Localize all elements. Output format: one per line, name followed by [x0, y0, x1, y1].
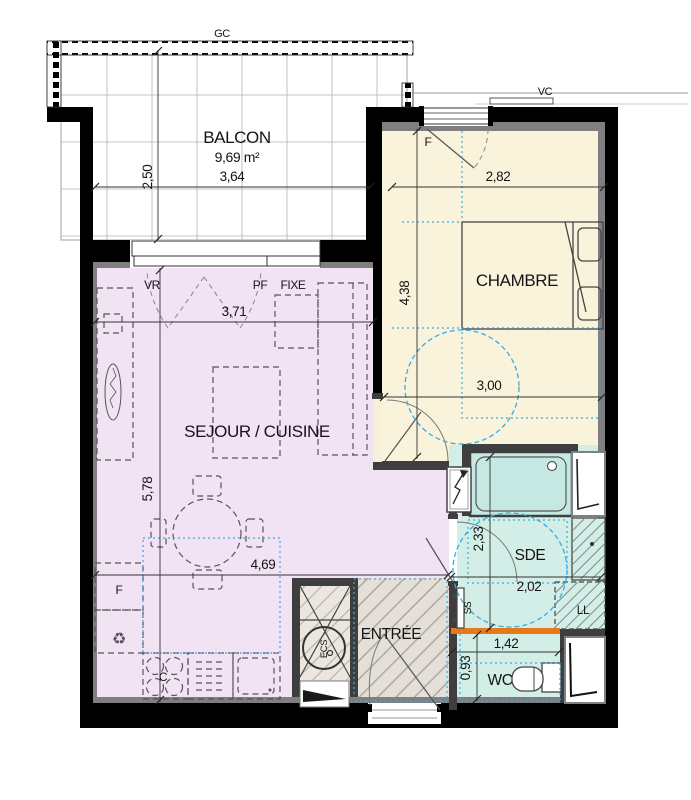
threshold-strip [451, 628, 560, 634]
balcon-label: BALCON [203, 128, 271, 147]
wc-label: WC [487, 672, 512, 689]
chambre-label: CHAMBRE [476, 271, 558, 290]
entree-label: ENTRÉE [361, 626, 422, 643]
svg-text:3,00: 3,00 [477, 378, 502, 393]
svg-text:4,38: 4,38 [397, 281, 412, 306]
vr-label: VR [144, 278, 161, 292]
bathroom-cabinet [572, 518, 605, 580]
sde-label: SDE [515, 547, 546, 564]
bay-window [130, 240, 320, 268]
svg-text:2,82: 2,82 [486, 169, 511, 184]
sejour-label: SEJOUR / CUISINE [184, 422, 330, 441]
fridge-f-label: F [116, 583, 123, 597]
svg-text:0,93: 0,93 [458, 656, 473, 681]
svg-text:2,33: 2,33 [471, 527, 486, 552]
floor-plan: 2,50 3,64 2,82 3,71 4,38 3,00 [0, 0, 691, 800]
svg-text:4,69: 4,69 [251, 557, 276, 572]
balcony-floor [61, 55, 407, 240]
window-f-label: F [425, 135, 432, 149]
cooktop-c-label: C [159, 670, 168, 684]
svg-text:2,50: 2,50 [140, 165, 155, 190]
gc-label: GC [214, 28, 230, 40]
towel-dryer-label: SS [463, 601, 474, 614]
recycle-icon: ♻ [112, 631, 126, 648]
toilet [512, 663, 561, 692]
shower-tray [470, 452, 572, 516]
technical-shaft-sde [572, 452, 605, 516]
washing-machine-label: LL [577, 603, 590, 617]
fixe-label: FIXE [280, 278, 305, 292]
svg-text:1,42: 1,42 [494, 636, 519, 651]
svg-text:5,78: 5,78 [140, 477, 155, 502]
svg-text:3,71: 3,71 [222, 304, 247, 319]
floor-plan-page: 2,50 3,64 2,82 3,71 4,38 3,00 [0, 0, 691, 800]
balcon-area-label: 9,69 m² [215, 149, 260, 165]
vc-label: VC [538, 86, 553, 98]
pf-label: PF [253, 278, 268, 292]
technical-shaft-wc [565, 637, 605, 703]
water-heater-label: ECS [319, 640, 330, 658]
drain-icon [548, 462, 557, 471]
electrical-panel [447, 467, 471, 512]
svg-text:2,02: 2,02 [517, 579, 542, 594]
svg-text:3,64: 3,64 [220, 169, 246, 184]
